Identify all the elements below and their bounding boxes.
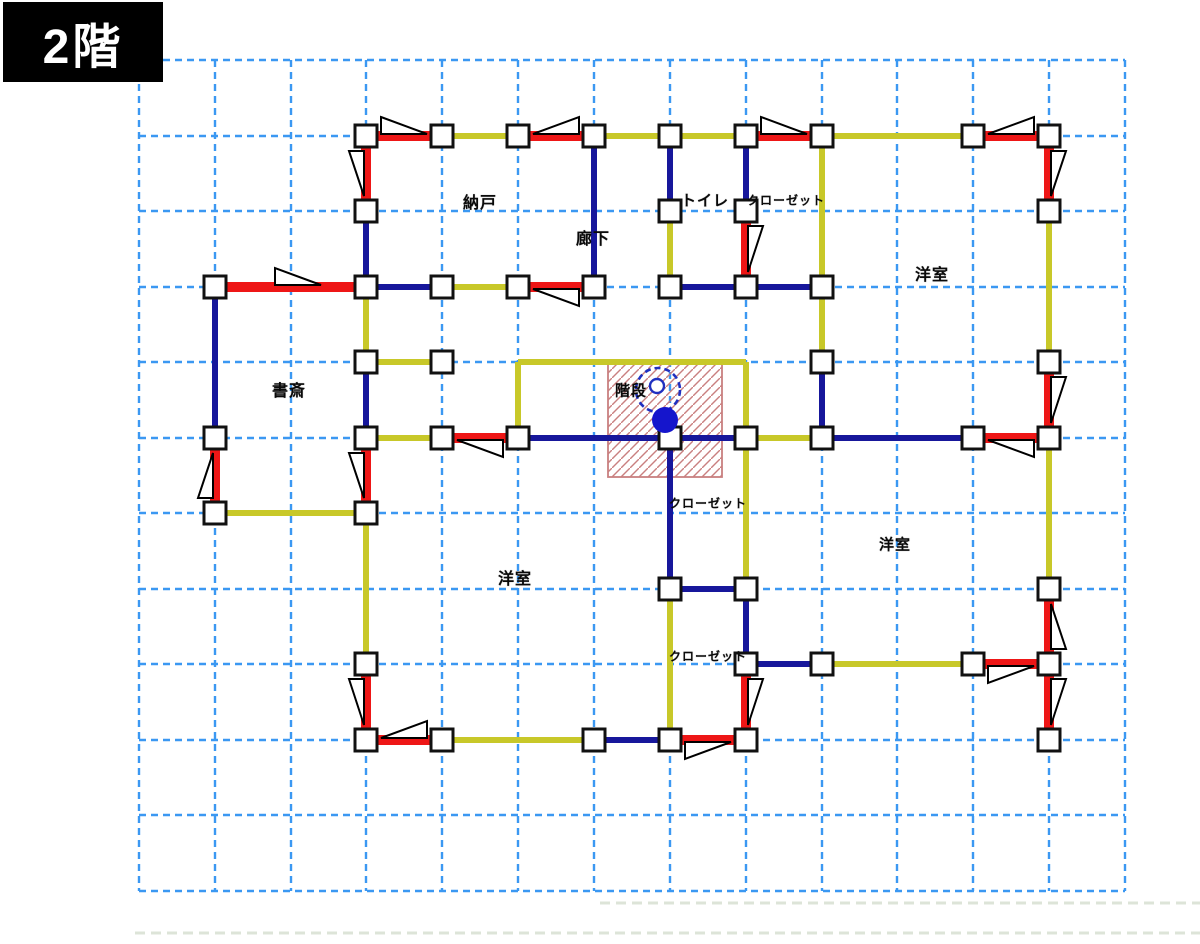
floor-plan-drawing	[0, 0, 1200, 944]
stairs-small-circle	[650, 379, 664, 393]
floor-title: 2階	[43, 7, 124, 77]
baseline-layer	[135, 903, 1200, 933]
column-square	[1038, 653, 1060, 675]
column-square	[431, 351, 453, 373]
column-square	[431, 427, 453, 449]
walls-layer	[215, 136, 1049, 740]
brace-triangle	[381, 721, 427, 738]
column-square	[811, 125, 833, 147]
column-square	[507, 427, 529, 449]
column-square	[355, 729, 377, 751]
column-square	[1038, 125, 1060, 147]
brace-triangle	[349, 679, 364, 725]
floor-plan-stage: 納戸廊下トイレクローゼット洋室書斎階段クローゼット洋室クローゼット洋室 2階	[0, 0, 1200, 944]
column-square	[735, 200, 757, 222]
column-square	[355, 351, 377, 373]
brace-triangle	[275, 268, 321, 285]
column-square	[431, 276, 453, 298]
stairs-dot	[652, 407, 678, 433]
column-square	[1038, 729, 1060, 751]
brace-triangle	[457, 440, 503, 457]
column-square	[355, 125, 377, 147]
column-square	[811, 351, 833, 373]
brace-triangle	[988, 440, 1034, 457]
column-square	[735, 729, 757, 751]
column-square	[962, 125, 984, 147]
brace-triangle	[748, 679, 763, 725]
column-square	[735, 276, 757, 298]
column-square	[659, 200, 681, 222]
brace-triangle	[748, 226, 763, 272]
brace-triangle	[685, 742, 731, 759]
column-square	[659, 729, 681, 751]
column-square	[735, 578, 757, 600]
column-square	[204, 427, 226, 449]
column-square	[811, 427, 833, 449]
column-square	[431, 125, 453, 147]
column-square	[659, 125, 681, 147]
brace-triangle	[533, 117, 579, 134]
brace-triangle	[988, 117, 1034, 134]
brace-triangle	[1051, 604, 1066, 649]
column-square	[507, 276, 529, 298]
brace-triangle	[533, 289, 579, 306]
column-square	[735, 125, 757, 147]
column-square	[962, 427, 984, 449]
column-square	[355, 653, 377, 675]
column-square	[355, 276, 377, 298]
column-square	[1038, 351, 1060, 373]
column-square	[659, 276, 681, 298]
column-square	[962, 653, 984, 675]
column-square	[583, 125, 605, 147]
column-square	[659, 578, 681, 600]
brace-triangle	[381, 117, 427, 134]
brace-triangle	[988, 666, 1034, 683]
column-square	[583, 729, 605, 751]
column-square	[1038, 427, 1060, 449]
column-square	[355, 502, 377, 524]
brace-triangle	[1051, 679, 1066, 725]
column-square	[583, 276, 605, 298]
column-square	[507, 125, 529, 147]
column-square	[735, 653, 757, 675]
column-square	[355, 427, 377, 449]
column-square	[204, 276, 226, 298]
column-square	[811, 653, 833, 675]
column-square	[1038, 200, 1060, 222]
column-square	[735, 427, 757, 449]
brace-triangle	[761, 117, 807, 134]
brace-triangle	[1051, 377, 1066, 423]
column-square	[204, 502, 226, 524]
brace-triangle	[198, 453, 213, 498]
column-square	[811, 276, 833, 298]
brace-triangle	[1051, 151, 1066, 196]
column-square	[431, 729, 453, 751]
brace-triangle	[349, 151, 364, 196]
column-square	[355, 200, 377, 222]
column-square	[1038, 578, 1060, 600]
floor-title-badge: 2階	[3, 2, 163, 82]
brace-triangle	[349, 453, 364, 498]
